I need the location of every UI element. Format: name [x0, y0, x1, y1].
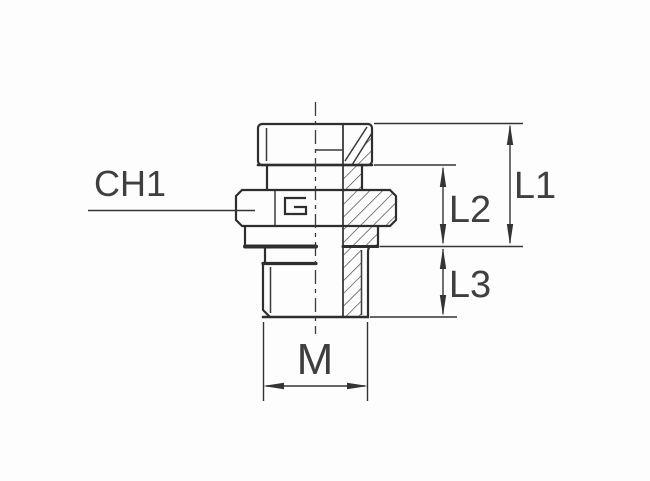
arrow-l1-down: [507, 224, 513, 245]
fitting-technical-drawing: CH1 L1 L2 L3 M: [0, 0, 650, 481]
label-ch1: CH1: [94, 163, 166, 204]
arrow-l2-down: [440, 224, 446, 245]
hatch-body: [343, 165, 396, 246]
label-l1: L1: [514, 165, 556, 207]
stud-right-edge: [368, 244, 378, 317]
label-l2: L2: [449, 189, 491, 231]
hex-stamp-icon: [285, 198, 306, 214]
arrow-m-right: [347, 383, 368, 389]
arrow-l3-up: [440, 248, 446, 269]
label-m: M: [297, 335, 334, 384]
dimension-labels: CH1 L1 L2 L3 M: [94, 163, 556, 384]
arrow-l1-up: [507, 124, 513, 145]
arrow-m-left: [263, 383, 284, 389]
technical-drawing-canvas: CH1 L1 L2 L3 M: [0, 0, 650, 481]
arrow-l3-down: [440, 295, 446, 316]
stud-left-edge: [263, 263, 270, 317]
hatch-stud: [343, 247, 361, 317]
arrow-l2-up: [440, 166, 446, 187]
label-l3: L3: [449, 264, 491, 306]
